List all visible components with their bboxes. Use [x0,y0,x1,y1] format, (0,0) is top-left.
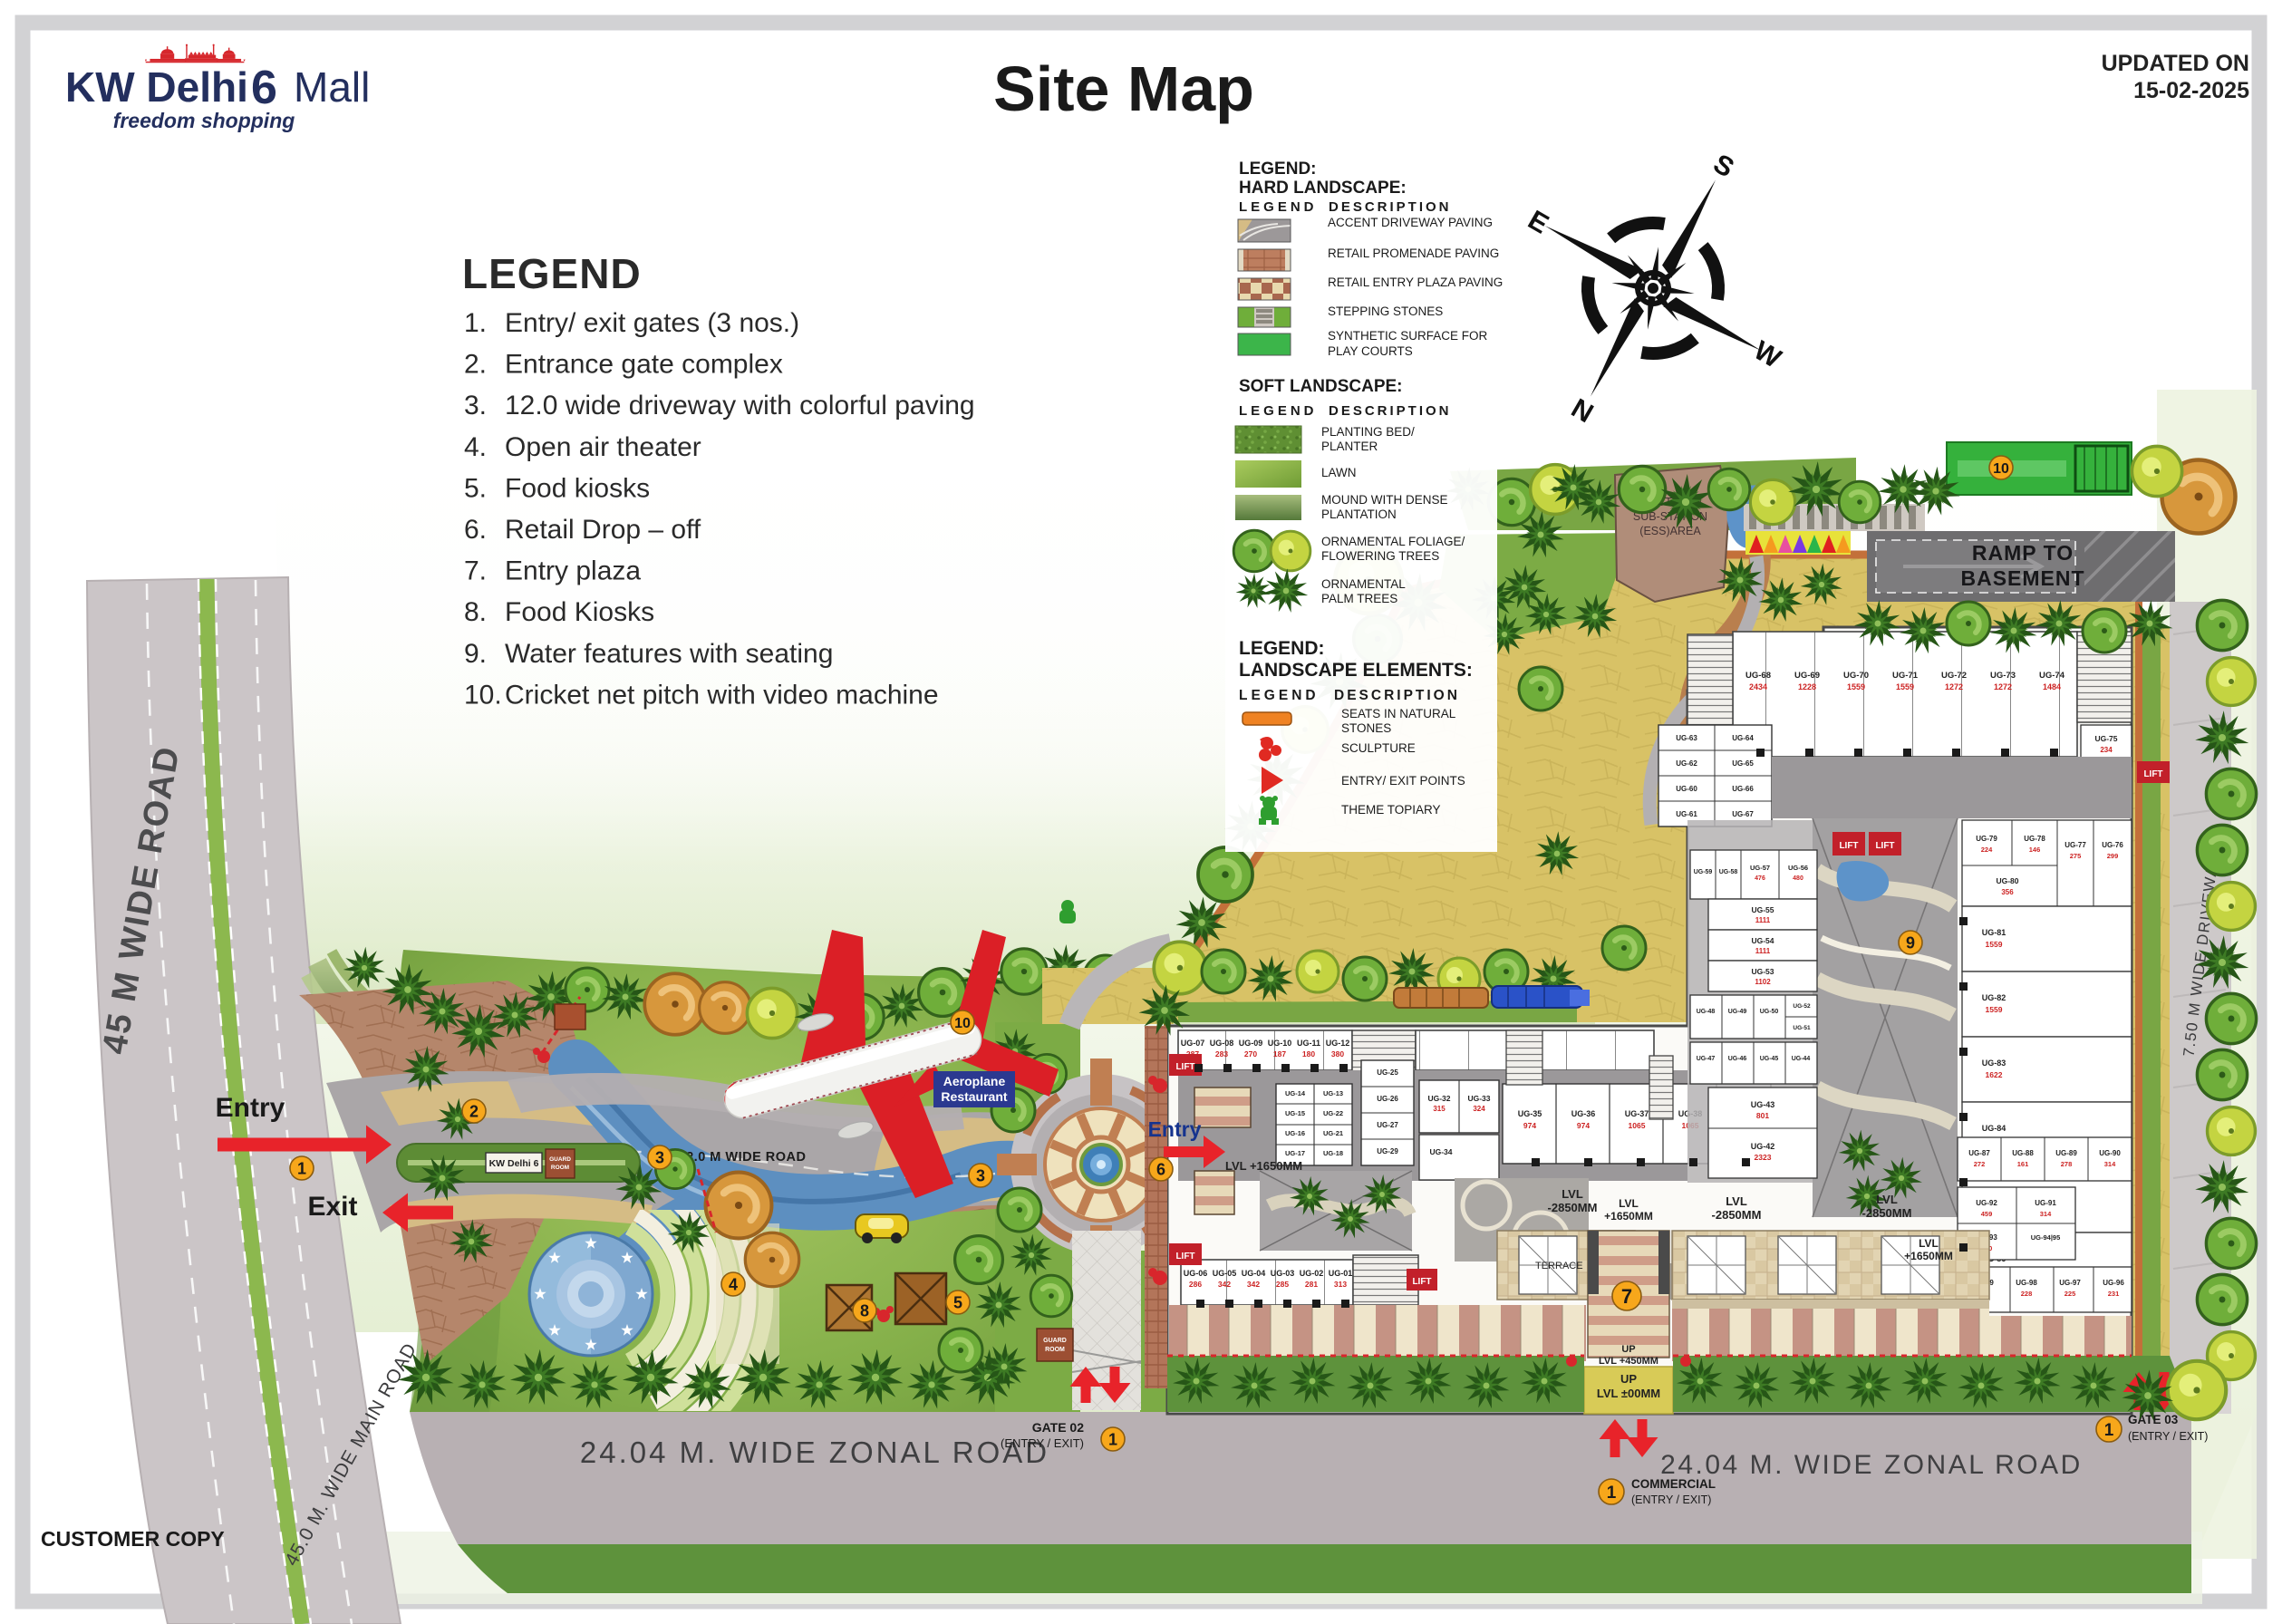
svg-text:476: 476 [1755,875,1765,882]
svg-text:3: 3 [655,1148,664,1166]
svg-text:PLANTER: PLANTER [1321,440,1378,453]
svg-text:6.: 6. [464,515,487,545]
svg-text:1559: 1559 [1847,682,1865,691]
svg-text:6: 6 [251,62,277,114]
svg-text:UG-87: UG-87 [1968,1149,1990,1157]
svg-text:UG-18: UG-18 [1323,1149,1343,1157]
svg-text:RAMP TO: RAMP TO [1972,541,2074,565]
svg-text:1102: 1102 [1755,978,1771,986]
svg-text:UG-05: UG-05 [1213,1269,1237,1278]
svg-text:UG-69: UG-69 [1794,671,1820,681]
svg-text:Open air theater: Open air theater [505,432,701,462]
svg-text:1484: 1484 [2043,682,2061,691]
svg-text:Entry: Entry [1148,1117,1202,1141]
svg-text:314: 314 [2104,1160,2116,1168]
svg-text:UG-52: UG-52 [1793,1003,1811,1010]
svg-text:1: 1 [1607,1484,1617,1503]
svg-text:UG-25: UG-25 [1377,1068,1398,1077]
svg-text:UG-34: UG-34 [1429,1147,1452,1156]
svg-text:801: 801 [1756,1111,1769,1120]
svg-text:228: 228 [2021,1290,2033,1298]
svg-text:UG-98: UG-98 [2016,1279,2037,1287]
svg-text:UG-83: UG-83 [1982,1058,2006,1068]
svg-text:10.: 10. [464,680,502,710]
svg-text:LIFT: LIFT [1875,841,1894,851]
svg-text:GATE 02: GATE 02 [1032,1420,1085,1435]
svg-text:313: 313 [1334,1280,1347,1289]
svg-text:UG-27: UG-27 [1377,1121,1398,1129]
svg-text:231: 231 [2108,1290,2120,1298]
svg-text:299: 299 [2107,852,2119,860]
svg-text:UG-04: UG-04 [1242,1269,1266,1278]
svg-text:UG-22: UG-22 [1323,1109,1343,1117]
svg-text:9: 9 [1906,933,1915,952]
svg-text:LVL: LVL [1876,1193,1898,1206]
svg-text:MOUND WITH DENSE: MOUND WITH DENSE [1321,493,1448,507]
svg-text:SOFT LANDSCAPE:: SOFT LANDSCAPE: [1239,377,1403,396]
svg-text:UG-76: UG-76 [2102,841,2123,849]
svg-text:ORNAMENTAL: ORNAMENTAL [1321,577,1406,591]
svg-text:UG-68: UG-68 [1745,671,1771,681]
svg-text:480: 480 [1793,875,1803,882]
svg-text:UG-73: UG-73 [1990,671,2016,681]
svg-text:UG-29: UG-29 [1377,1147,1398,1155]
svg-text:ORNAMENTAL FOLIAGE/: ORNAMENTAL FOLIAGE/ [1321,535,1465,548]
svg-text:UG-89: UG-89 [2055,1149,2077,1157]
svg-text:UG-84: UG-84 [1982,1124,2006,1133]
svg-text:UG-11: UG-11 [1297,1039,1320,1048]
svg-text:UG-58: UG-58 [1719,869,1738,875]
svg-text:Entrance gate complex: Entrance gate complex [505,350,783,380]
svg-text:UP: UP [1621,1344,1635,1355]
svg-text:UG-36: UG-36 [1571,1109,1596,1118]
svg-text:8.: 8. [464,597,487,627]
svg-text:UG-06: UG-06 [1184,1269,1208,1278]
svg-text:UG-42: UG-42 [1751,1142,1775,1151]
svg-text:380: 380 [1331,1049,1344,1058]
svg-text:315: 315 [1433,1105,1446,1113]
svg-text:UG-82: UG-82 [1982,993,2006,1002]
svg-text:Food Kiosks: Food Kiosks [505,597,654,627]
svg-text:LEGEND: LEGEND [1239,403,1318,419]
svg-text:272: 272 [1974,1160,1986,1168]
svg-text:UG-45: UG-45 [1760,1056,1779,1062]
svg-text:LIFT: LIFT [1175,1252,1194,1261]
svg-text:UG-50: UG-50 [1760,1009,1779,1015]
svg-text:270: 270 [1244,1049,1257,1058]
svg-text:LEGEND: LEGEND [1239,688,1320,703]
svg-text:12.0 wide driveway with colorf: 12.0 wide driveway with colorful paving [505,391,975,420]
svg-text:10: 10 [1993,461,2009,477]
svg-text:PALM TREES: PALM TREES [1321,592,1397,605]
svg-text:(ESS)AREA: (ESS)AREA [1639,525,1701,537]
svg-text:UG-61: UG-61 [1676,810,1697,818]
svg-text:286: 286 [1189,1280,1202,1289]
svg-text:5.: 5. [464,473,487,503]
svg-text:FLOWERING TREES: FLOWERING TREES [1321,549,1439,563]
svg-text:Exit: Exit [307,1192,357,1222]
svg-text:146: 146 [2029,846,2041,854]
svg-text:DESCRIPTION: DESCRIPTION [1329,199,1452,215]
svg-text:974: 974 [1523,1121,1536,1130]
svg-text:356: 356 [2001,888,2014,896]
svg-text:UG-92: UG-92 [1976,1199,1997,1207]
svg-text:UG-59: UG-59 [1694,869,1713,875]
svg-text:UG-21: UG-21 [1323,1129,1343,1137]
svg-text:UG-70: UG-70 [1843,671,1869,681]
svg-text:Entry plaza: Entry plaza [505,556,641,586]
svg-text:UG-74: UG-74 [2039,671,2065,681]
svg-text:(ENTRY / EXIT): (ENTRY / EXIT) [1631,1493,1711,1506]
svg-text:1559: 1559 [1896,682,1914,691]
svg-text:1272: 1272 [1945,682,1963,691]
svg-text:UG-47: UG-47 [1697,1056,1716,1062]
svg-text:LVL: LVL [1726,1194,1747,1208]
svg-text:1065: 1065 [1629,1121,1646,1130]
svg-text:12.0 M WIDE ROAD: 12.0 M WIDE ROAD [679,1150,807,1165]
svg-text:(ENTRY / EXIT): (ENTRY / EXIT) [2128,1430,2208,1443]
svg-text:SEATS IN NATURAL: SEATS IN NATURAL [1341,707,1456,720]
svg-text:ACCENT DRIVEWAY PAVING: ACCENT DRIVEWAY PAVING [1328,216,1493,229]
svg-text:UG-37: UG-37 [1625,1109,1649,1118]
svg-text:3: 3 [976,1166,985,1184]
svg-text:LIFT: LIFT [1175,1062,1194,1072]
svg-text:Food kiosks: Food kiosks [505,473,650,503]
svg-text:1272: 1272 [1994,682,2012,691]
svg-text:314: 314 [2040,1210,2052,1218]
svg-text:UG-81: UG-81 [1982,928,2006,937]
svg-text:TERRACE: TERRACE [1535,1261,1583,1271]
svg-text:STONES: STONES [1341,721,1391,735]
svg-text:278: 278 [2061,1160,2073,1168]
svg-text:LIFT: LIFT [1839,841,1858,851]
svg-text:PLAY COURTS: PLAY COURTS [1328,344,1413,358]
svg-text:HARD LANDSCAPE:: HARD LANDSCAPE: [1239,179,1407,198]
svg-text:2323: 2323 [1755,1153,1772,1162]
svg-text:LVL: LVL [1562,1187,1583,1201]
svg-text:UG-43: UG-43 [1751,1100,1775,1109]
svg-text:LVL: LVL [1919,1237,1939,1250]
svg-text:DESCRIPTION: DESCRIPTION [1329,403,1452,419]
svg-text:Water features with seating: Water features with seating [505,639,833,669]
svg-text:UG-57: UG-57 [1750,864,1770,872]
svg-text:UG-07: UG-07 [1181,1039,1205,1048]
svg-text:PLANTATION: PLANTATION [1321,507,1397,521]
svg-text:SCULPTURE: SCULPTURE [1341,741,1416,755]
svg-text:9.: 9. [464,639,487,669]
svg-text:UG-03: UG-03 [1271,1269,1295,1278]
svg-text:UG-66: UG-66 [1732,785,1754,793]
svg-text:187: 187 [1273,1049,1286,1058]
svg-text:UG-91: UG-91 [2035,1199,2056,1207]
svg-text:275: 275 [2070,852,2082,860]
svg-text:UG-55: UG-55 [1751,905,1774,914]
svg-text:BASEMENT: BASEMENT [1960,566,2084,590]
svg-text:285: 285 [1276,1280,1289,1289]
svg-text:UG-72: UG-72 [1941,671,1967,681]
svg-text:UG-09: UG-09 [1239,1039,1263,1048]
svg-text:234: 234 [2100,746,2113,754]
svg-text:324: 324 [1473,1105,1485,1113]
svg-text:UG-53: UG-53 [1751,967,1774,976]
svg-text:UG-90: UG-90 [2099,1149,2121,1157]
svg-text:UG-64: UG-64 [1732,734,1754,742]
svg-text:UG-08: UG-08 [1210,1039,1234,1048]
svg-text:Aeroplane: Aeroplane [943,1074,1006,1088]
svg-text:UG-56: UG-56 [1788,864,1808,872]
svg-text:-2850MM: -2850MM [1862,1206,1912,1220]
svg-text:Entry/ exit gates (3 nos.): Entry/ exit gates (3 nos.) [505,308,799,338]
svg-text:SYNTHETIC SURFACE FOR: SYNTHETIC SURFACE FOR [1328,329,1488,343]
svg-text:UPDATED ON: UPDATED ON [2102,51,2249,76]
svg-text:UG-51: UG-51 [1793,1025,1811,1031]
svg-text:4: 4 [729,1275,738,1293]
svg-text:UG-35: UG-35 [1518,1109,1542,1118]
svg-text:freedom shopping: freedom shopping [113,109,295,132]
svg-text:RETAIL ENTRY PLAZA PAVING: RETAIL ENTRY PLAZA PAVING [1328,275,1503,289]
svg-text:(ENTRY / EXIT): (ENTRY / EXIT) [1001,1436,1084,1450]
svg-text:459: 459 [1981,1210,1993,1218]
svg-text:24.04 M. WIDE ZONAL ROAD: 24.04 M. WIDE ZONAL ROAD [580,1435,1049,1469]
svg-text:3.: 3. [464,391,487,420]
svg-text:LIFT: LIFT [2143,769,2162,779]
svg-text:LVL: LVL [1619,1197,1639,1210]
svg-text:225: 225 [2064,1290,2076,1298]
svg-text:342: 342 [1218,1280,1231,1289]
svg-text:1.: 1. [464,308,487,338]
svg-text:2434: 2434 [1749,682,1767,691]
svg-text:ROOM: ROOM [1045,1347,1065,1353]
svg-text:342: 342 [1247,1280,1260,1289]
svg-text:UG-49: UG-49 [1728,1009,1747,1015]
svg-text:-2850MM: -2850MM [1712,1208,1762,1222]
svg-text:15-02-2025: 15-02-2025 [2133,78,2249,103]
svg-text:7.: 7. [464,556,487,586]
svg-text:UG-97: UG-97 [2059,1279,2081,1287]
svg-text:7: 7 [1621,1285,1632,1308]
svg-text:LAWN: LAWN [1321,466,1357,479]
svg-text:6: 6 [1156,1160,1165,1178]
svg-text:+1650MM: +1650MM [1904,1250,1953,1262]
svg-text:281: 281 [1305,1280,1318,1289]
svg-text:Retail Drop – off: Retail Drop – off [505,515,701,545]
svg-text:Cricket net pitch with video m: Cricket net pitch with video machine [505,680,939,710]
svg-text:KW Delhi 6: KW Delhi 6 [489,1158,539,1169]
svg-text:UG-15: UG-15 [1285,1109,1305,1117]
svg-text:1: 1 [2104,1421,2114,1440]
svg-text:UG-14: UG-14 [1285,1089,1306,1097]
svg-text:10: 10 [954,1016,971,1031]
svg-text:283: 283 [1215,1049,1228,1058]
svg-text:UG-46: UG-46 [1728,1056,1747,1062]
svg-text:LEGEND: LEGEND [1239,199,1318,215]
svg-text:1559: 1559 [1986,940,2003,949]
svg-text:2.: 2. [464,350,487,380]
svg-text:1111: 1111 [1755,947,1771,955]
svg-text:LEGEND:: LEGEND: [1239,159,1317,179]
svg-text:Mall: Mall [294,63,370,111]
svg-text:COMMERCIAL: COMMERCIAL [1631,1477,1716,1491]
svg-text:1622: 1622 [1986,1070,2003,1079]
svg-text:UG-01: UG-01 [1329,1269,1353,1278]
svg-text:UG-32: UG-32 [1427,1094,1450,1103]
svg-text:UG-48: UG-48 [1697,1009,1716,1015]
svg-text:UG-54: UG-54 [1751,936,1774,945]
svg-text:LVL +1650MM: LVL +1650MM [1225,1159,1302,1173]
svg-text:UG-77: UG-77 [2064,841,2086,849]
svg-text:GUARD: GUARD [549,1156,571,1163]
svg-text:2: 2 [469,1102,479,1120]
svg-text:DESCRIPTION: DESCRIPTION [1334,688,1460,703]
svg-text:ROOM: ROOM [551,1165,569,1171]
svg-text:LEGEND:: LEGEND: [1239,638,1325,659]
svg-text:Restaurant: Restaurant [941,1089,1007,1104]
svg-text:UG-02: UG-02 [1300,1269,1324,1278]
svg-text:UG-13: UG-13 [1323,1089,1343,1097]
svg-text:+1650MM: +1650MM [1604,1210,1653,1223]
svg-text:UG-16: UG-16 [1285,1129,1305,1137]
svg-text:STEPPING STONES: STEPPING STONES [1328,304,1443,318]
svg-text:24.04 M. WIDE ZONAL ROAD: 24.04 M. WIDE ZONAL ROAD [1660,1450,2083,1480]
svg-text:1559: 1559 [1986,1005,2003,1014]
svg-text:UG-94|95: UG-94|95 [2031,1233,2061,1242]
svg-text:161: 161 [2017,1160,2029,1168]
svg-text:Entry: Entry [216,1093,285,1123]
svg-text:LIFT: LIFT [1412,1277,1431,1287]
svg-text:LVL ±00MM: LVL ±00MM [1597,1387,1660,1400]
svg-text:UG-60: UG-60 [1676,785,1697,793]
svg-text:UG-33: UG-33 [1467,1094,1490,1103]
svg-text:UG-75: UG-75 [2094,734,2117,743]
svg-text:224: 224 [1981,846,1993,854]
svg-text:UG-88: UG-88 [2012,1149,2034,1157]
svg-text:180: 180 [1302,1049,1315,1058]
svg-text:LEGEND: LEGEND [462,250,642,297]
svg-text:Site Map: Site Map [993,53,1254,124]
svg-text:UG-79: UG-79 [1976,835,1997,843]
svg-text:1111: 1111 [1755,916,1771,924]
svg-text:UG-17: UG-17 [1285,1149,1305,1157]
svg-text:UG-71: UG-71 [1892,671,1919,681]
svg-text:GUARD: GUARD [1043,1338,1067,1344]
svg-text:UG-63: UG-63 [1676,734,1697,742]
svg-text:UG-62: UG-62 [1676,759,1697,768]
svg-text:UG-26: UG-26 [1377,1095,1398,1103]
svg-text:UG-78: UG-78 [2024,835,2045,843]
svg-text:PLANTING BED/: PLANTING BED/ [1321,425,1415,439]
svg-text:-2850MM: -2850MM [1548,1201,1598,1214]
svg-text:UP: UP [1620,1372,1637,1386]
svg-text:8: 8 [860,1301,869,1319]
svg-text:4.: 4. [464,432,487,462]
svg-text:UG-80: UG-80 [1996,876,2018,885]
svg-text:UG-44: UG-44 [1792,1056,1811,1062]
svg-text:1228: 1228 [1798,682,1816,691]
svg-text:KW Delhi: KW Delhi [65,63,248,111]
svg-text:UG-65: UG-65 [1732,759,1754,768]
svg-text:UG-12: UG-12 [1326,1039,1350,1048]
svg-text:UG-67: UG-67 [1732,810,1754,818]
svg-text:1: 1 [297,1159,306,1177]
svg-text:RETAIL PROMENADE PAVING: RETAIL PROMENADE PAVING [1328,246,1499,260]
svg-text:LANDSCAPE ELEMENTS:: LANDSCAPE ELEMENTS: [1239,660,1473,681]
svg-text:974: 974 [1577,1121,1590,1130]
svg-text:THEME TOPIARY: THEME TOPIARY [1341,803,1441,817]
svg-text:UG-10: UG-10 [1268,1039,1292,1048]
svg-text:CUSTOMER COPY: CUSTOMER COPY [41,1527,225,1551]
svg-text:UG-96: UG-96 [2103,1279,2124,1287]
svg-text:1: 1 [1108,1430,1117,1448]
svg-text:5: 5 [953,1293,962,1311]
svg-text:LVL +450MM: LVL +450MM [1599,1356,1658,1367]
svg-text:ENTRY/ EXIT POINTS: ENTRY/ EXIT POINTS [1341,774,1465,788]
